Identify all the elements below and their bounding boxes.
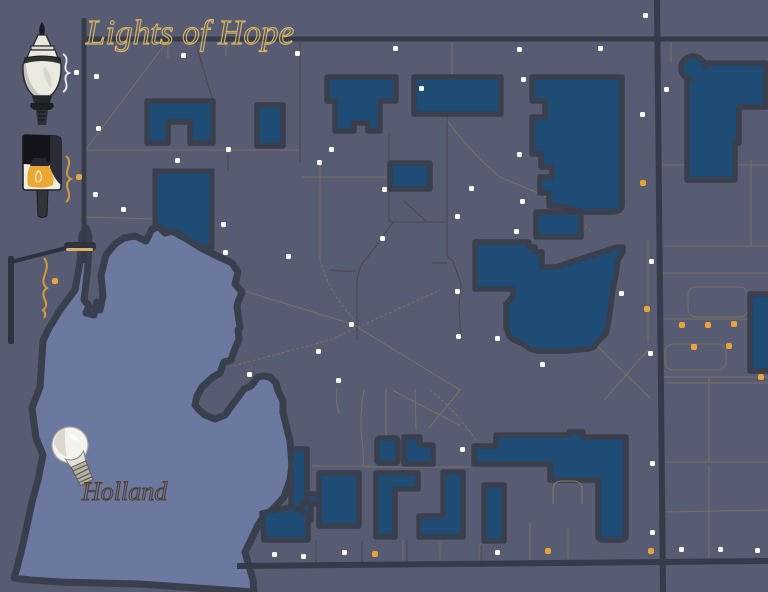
svg-text:Holland: Holland xyxy=(81,477,168,506)
svg-text:Lights of Hope: Lights of Hope xyxy=(85,13,294,52)
